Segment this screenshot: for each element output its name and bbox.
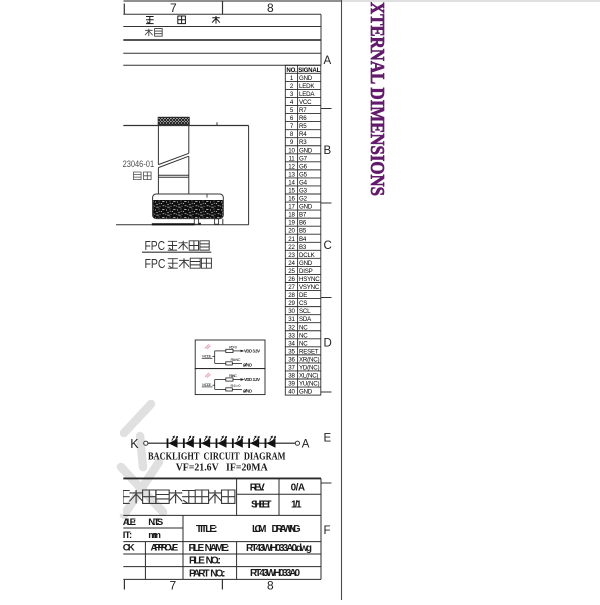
svg-text:11: 11 xyxy=(289,155,296,162)
svg-text:24: 24 xyxy=(288,260,295,267)
svg-text:DE: DE xyxy=(299,292,307,299)
svg-text:GND: GND xyxy=(299,204,313,211)
svg-text:PART NO.:: PART NO.: xyxy=(189,569,226,580)
svg-text:RESET: RESET xyxy=(299,348,319,355)
svg-text:F: F xyxy=(324,525,331,537)
svg-text:18: 18 xyxy=(288,212,295,219)
svg-text:7: 7 xyxy=(170,1,177,15)
svg-text:NO.: NO. xyxy=(286,67,297,74)
svg-text:30: 30 xyxy=(288,308,295,315)
svg-text:YD(NC): YD(NC) xyxy=(299,364,319,371)
svg-text:37: 37 xyxy=(288,364,295,371)
svg-text:32: 32 xyxy=(288,324,295,331)
svg-text:14: 14 xyxy=(288,179,295,186)
svg-text:mm: mm xyxy=(148,530,161,541)
svg-text:DCLK: DCLK xyxy=(299,252,316,259)
svg-text:19: 19 xyxy=(288,220,295,227)
svg-text:C: C xyxy=(324,240,332,252)
svg-text:21: 21 xyxy=(288,236,295,243)
svg-text:1/1: 1/1 xyxy=(291,500,302,511)
svg-text:20: 20 xyxy=(288,228,295,235)
svg-text:GND: GND xyxy=(299,260,313,267)
svg-text:XTERNAL DIMENSIONS: XTERNAL DIMENSIONS xyxy=(366,2,388,196)
svg-text:G3: G3 xyxy=(299,188,308,195)
svg-text:MODE: MODE xyxy=(202,354,211,359)
svg-text:VDD 3.3V: VDD 3.3V xyxy=(244,377,260,382)
svg-text:7: 7 xyxy=(170,579,177,593)
svg-text:29: 29 xyxy=(288,300,295,307)
svg-text:GND: GND xyxy=(299,147,313,154)
svg-text:SHEET:: SHEET: xyxy=(251,500,271,511)
svg-text:HSYNC: HSYNC xyxy=(299,276,320,283)
svg-text:APPROVE: APPROVE xyxy=(151,543,179,554)
svg-text:XL(NC): XL(NC) xyxy=(299,373,318,380)
svg-text:XR(NC): XR(NC) xyxy=(299,356,319,363)
svg-text:17: 17 xyxy=(288,204,295,211)
svg-text:RT43WH033A0: RT43WH033A0 xyxy=(250,568,300,579)
svg-text:G7: G7 xyxy=(299,155,308,162)
svg-text:E: E xyxy=(324,433,332,445)
svg-text:15: 15 xyxy=(288,188,295,195)
svg-text:34: 34 xyxy=(288,340,295,347)
svg-text:VCC: VCC xyxy=(299,99,312,106)
svg-text:G2: G2 xyxy=(299,196,308,203)
svg-text:R7: R7 xyxy=(299,107,307,114)
svg-text:FPC: FPC xyxy=(145,256,166,271)
svg-text:26: 26 xyxy=(288,276,295,283)
svg-text:16: 16 xyxy=(288,196,295,203)
svg-text:SDA: SDA xyxy=(299,316,312,323)
svg-text:SIGNAL: SIGNAL xyxy=(298,67,320,74)
svg-text:28: 28 xyxy=(288,292,295,299)
svg-text:R4: R4 xyxy=(299,131,307,138)
svg-text:N.T.S: N.T.S xyxy=(148,517,163,528)
svg-text:LCM: LCM xyxy=(252,524,267,535)
svg-text:31: 31 xyxy=(288,316,295,323)
svg-text:LEDA: LEDA xyxy=(299,91,315,98)
svg-text:G6: G6 xyxy=(299,163,308,170)
svg-text:B: B xyxy=(324,145,332,157)
svg-text:23: 23 xyxy=(288,252,295,259)
svg-text:36: 36 xyxy=(288,356,295,363)
svg-text:R3: R3 xyxy=(299,139,307,146)
svg-text:B5: B5 xyxy=(299,228,307,235)
svg-text:YU(NC): YU(NC) xyxy=(299,381,319,388)
svg-text:GND: GND xyxy=(243,363,252,368)
svg-text:K: K xyxy=(130,437,139,451)
svg-text:FILE NAME:: FILE NAME: xyxy=(189,543,230,554)
svg-text:NC: NC xyxy=(299,340,308,347)
svg-text:VSYNC: VSYNC xyxy=(299,284,320,291)
svg-text:22: 22 xyxy=(288,244,295,251)
svg-text:A: A xyxy=(302,439,310,451)
svg-text:13: 13 xyxy=(288,171,295,178)
svg-text:R5=0: R5=0 xyxy=(229,344,238,349)
svg-text:D: D xyxy=(324,338,332,350)
svg-text:B7: B7 xyxy=(299,212,307,219)
svg-text:IT:: IT: xyxy=(123,530,133,541)
svg-text:8: 8 xyxy=(267,1,274,15)
svg-text:CK: CK xyxy=(123,543,135,554)
svg-text:NC: NC xyxy=(299,332,308,339)
svg-text:0/A: 0/A xyxy=(291,482,306,493)
svg-text:33: 33 xyxy=(288,332,295,339)
svg-text:VDD 3.3V: VDD 3.3V xyxy=(244,349,260,354)
svg-text:DRAWING: DRAWING xyxy=(272,524,301,535)
svg-text:BACKLIGHT CIRCUIT DIAGRAM: BACKLIGHT CIRCUIT DIAGRAM xyxy=(148,452,286,463)
svg-text:R5: R5 xyxy=(299,123,307,130)
svg-text:39: 39 xyxy=(288,381,295,388)
svg-text:B6: B6 xyxy=(299,220,307,227)
svg-text:FILE NO.:: FILE NO.: xyxy=(189,556,221,567)
svg-text:35: 35 xyxy=(288,348,295,355)
svg-text:SCL: SCL xyxy=(299,308,311,315)
svg-text:RT43WH033A0.dwg: RT43WH033A0.dwg xyxy=(246,543,312,554)
svg-text:LEDK: LEDK xyxy=(299,83,315,90)
svg-text:REV:: REV: xyxy=(250,482,265,493)
svg-text:A: A xyxy=(324,55,332,67)
svg-text:R5=NC: R5=NC xyxy=(229,373,237,378)
svg-text:8: 8 xyxy=(267,579,274,593)
svg-text:R6=NC: R6=NC xyxy=(231,357,241,362)
svg-text:G4: G4 xyxy=(299,179,308,186)
svg-text:TITLE:: TITLE: xyxy=(196,524,218,535)
svg-text:R6: R6 xyxy=(299,115,307,122)
svg-text:CS: CS xyxy=(299,300,307,307)
svg-text:10: 10 xyxy=(288,147,295,154)
svg-text:27: 27 xyxy=(288,284,295,291)
svg-text:25: 25 xyxy=(288,268,295,275)
svg-text:MODE: MODE xyxy=(202,382,211,387)
svg-text:ALE:: ALE: xyxy=(123,517,137,528)
svg-text:GND: GND xyxy=(299,389,313,396)
svg-text:12: 12 xyxy=(288,163,295,170)
svg-text:23046-01: 23046-01 xyxy=(123,159,155,170)
svg-text:B3: B3 xyxy=(299,244,307,251)
svg-text:NC: NC xyxy=(299,324,308,331)
svg-text:R6=0: R6=0 xyxy=(231,383,242,388)
svg-text:VF=21.6V IF=20MA: VF=21.6V IF=20MA xyxy=(176,462,268,473)
svg-text:38: 38 xyxy=(288,373,295,380)
svg-text:DISP: DISP xyxy=(299,268,313,275)
svg-text:GND: GND xyxy=(299,75,313,82)
svg-text:B4: B4 xyxy=(299,236,307,243)
svg-text:40: 40 xyxy=(288,389,295,396)
svg-text:FPC: FPC xyxy=(145,239,166,253)
svg-text:G5: G5 xyxy=(299,171,308,178)
svg-text:GND: GND xyxy=(243,389,252,394)
